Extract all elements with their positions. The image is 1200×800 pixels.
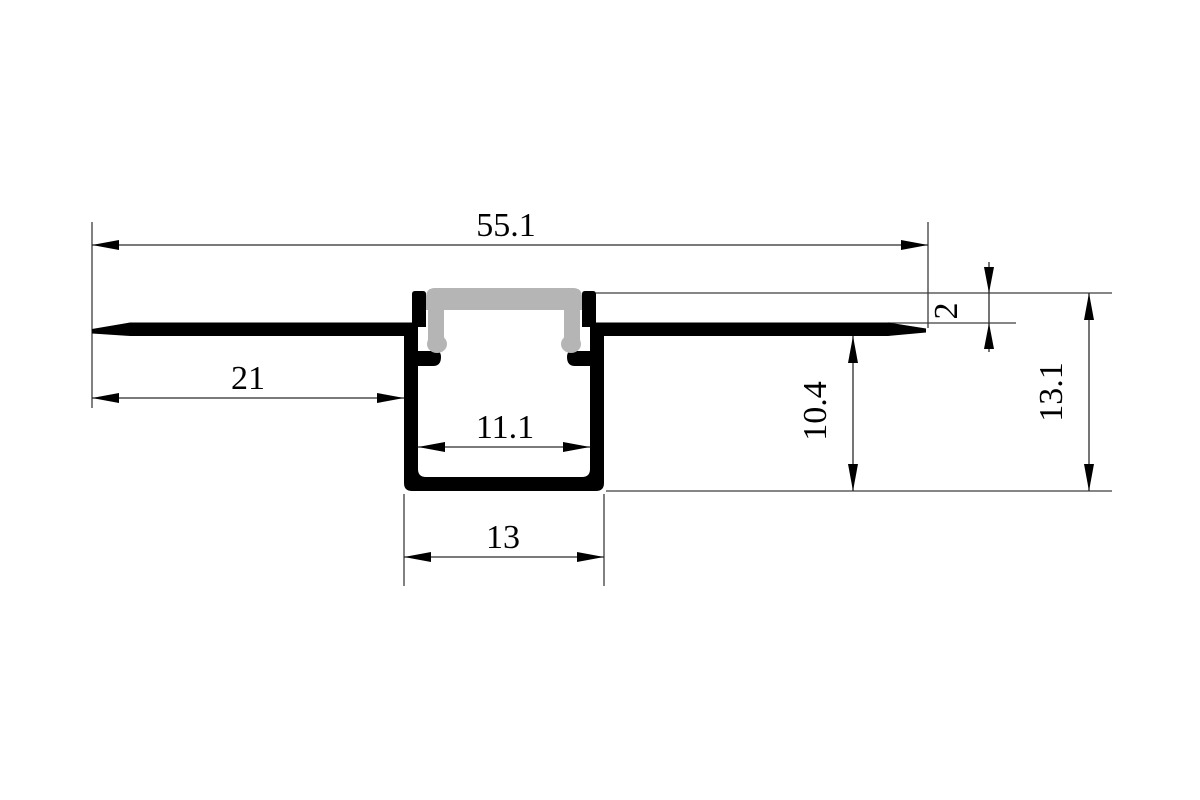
dimension-label-overall-height: 13.1 [1033, 362, 1070, 422]
arrowhead-up-icon [984, 323, 994, 349]
dimension-label-overall-width: 55.1 [476, 207, 536, 244]
diffuser-left-foot [427, 335, 447, 353]
profile-left-lip [414, 351, 441, 366]
arrowhead-right-icon [563, 442, 590, 452]
dimension-left-flange: 21 [92, 360, 404, 403]
dimension-body-depth: 10.4 [797, 336, 858, 491]
dimension-label-inner-width: 11.1 [476, 409, 534, 446]
arrowhead-left-icon [92, 240, 119, 250]
dimension-label-recess-step: 2 [928, 303, 965, 320]
profile-left-flange [92, 323, 404, 337]
dimension-label-body-depth: 10.4 [797, 381, 834, 441]
drawing-canvas: 55.1 21 11.1 13 2 10.4 13. [0, 0, 1200, 800]
dimension-overall-width: 55.1 [92, 207, 928, 250]
dimension-recess-step: 2 [928, 262, 994, 352]
arrowhead-down-icon [848, 464, 858, 491]
arrowhead-right-icon [577, 552, 604, 562]
dimension-overall-height: 13.1 [1033, 293, 1094, 491]
profile-right-lip [567, 351, 594, 366]
arrowhead-up-icon [1084, 293, 1094, 320]
profile-drawing: 55.1 21 11.1 13 2 10.4 13. [0, 0, 1200, 800]
diffuser-cover [426, 288, 582, 353]
dimension-label-left-flange: 21 [231, 360, 265, 397]
profile-right-stub [582, 291, 596, 327]
arrowhead-left-icon [404, 552, 431, 562]
arrowhead-left-icon [418, 442, 445, 452]
arrowhead-up-icon [848, 336, 858, 363]
diffuser-plate [426, 288, 582, 310]
dimension-inner-width: 11.1 [418, 409, 590, 452]
arrowhead-left-icon [92, 393, 119, 403]
dimension-base-width: 13 [404, 519, 604, 562]
dimension-label-base-width: 13 [486, 519, 520, 556]
arrowhead-down-icon [984, 267, 994, 293]
profile-right-flange [604, 323, 926, 337]
arrowhead-down-icon [1084, 464, 1094, 491]
arrowhead-right-icon [901, 240, 928, 250]
diffuser-right-foot [561, 335, 581, 353]
profile-left-stub [412, 291, 426, 327]
arrowhead-right-icon [377, 393, 404, 403]
